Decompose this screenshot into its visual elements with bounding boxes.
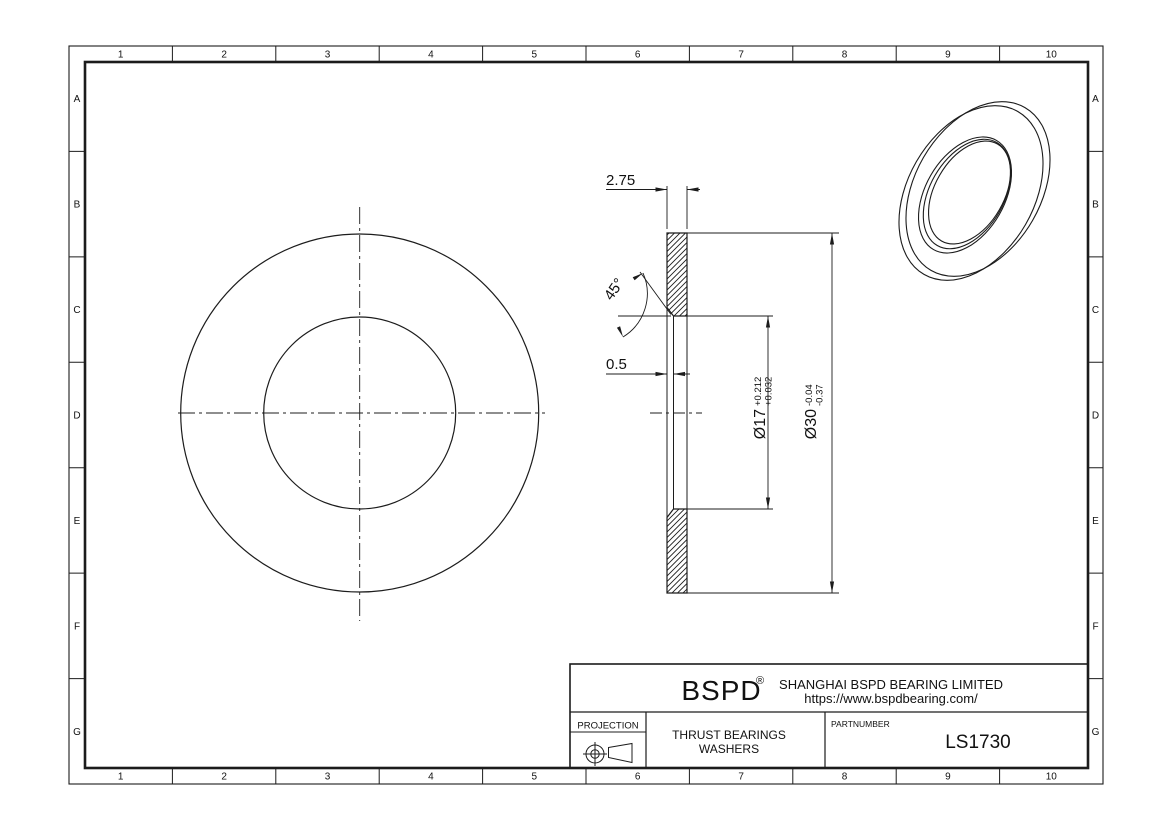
grid-column-label: 6 [635,50,641,61]
outer-tolerance-lower: -0.37 [815,384,826,406]
grid-row-label: C [1092,305,1099,316]
grid-column-label: 5 [532,772,538,783]
projection-label: PROJECTION [577,721,638,732]
dimension-chamfer-angle: 45° [601,272,671,337]
section-top-band [667,233,687,316]
grid-column-label: 7 [738,772,744,783]
bore-silhouette-lines [667,308,687,518]
dimension-chamfer-size: 0.5 [606,356,690,376]
chamfer-size-value: 0.5 [606,356,627,373]
projection-crosshair [583,742,607,766]
arrowhead [656,187,668,191]
drawing-sheet: 1 2 3 4 5 6 7 8 9 10 1 2 3 4 5 6 7 8 9 1… [0,0,1170,827]
arrowhead [656,372,668,376]
registered-trademark: ® [756,675,764,687]
title-block: BSPD ® SHANGHAI BSPD BEARING LIMITED htt… [570,664,1088,768]
grid-column-label: 3 [325,772,331,783]
outer-back-edge [869,80,1072,306]
extension-lines [667,186,687,229]
grid-column-label: 9 [945,772,951,783]
dimension-thickness: 2.75 [606,172,700,229]
grid-column-label: 1 [118,50,124,61]
arrowhead [633,273,643,280]
grid-row-label: C [73,305,80,316]
grid-row-label: B [1092,200,1099,211]
grid-row-label: F [74,621,80,632]
isometric-view [869,76,1079,306]
outer-front-edge [876,76,1079,302]
grid-column-label: 5 [532,50,538,61]
angle-arc [623,273,647,337]
grid-column-label: 4 [428,50,434,61]
grid-row-label: D [73,411,80,422]
grid-column-label: 6 [635,772,641,783]
outer-tolerance-upper: -0.04 [804,384,815,406]
grid-row-label: E [74,516,81,527]
inner-border [85,62,1088,768]
grid-row-label: A [1092,94,1099,105]
arrowhead [766,498,770,510]
bore-front-edge [899,121,1030,270]
grid-column-label: 8 [842,772,848,783]
chamfer-angle-value: 45° [601,275,628,303]
grid-column-label: 10 [1046,50,1058,61]
arrowhead [830,582,834,594]
grid-row-label: E [1092,516,1099,527]
product-title-line2: WASHERS [699,742,759,756]
grid-column-label: 2 [221,50,227,61]
partnumber-value: LS1730 [945,732,1011,753]
grid-column-label: 2 [221,772,227,783]
projection-cone [609,744,633,763]
section-bottom-band [667,509,687,593]
grid-row-label: B [74,200,81,211]
engineering-drawing: 1 2 3 4 5 6 7 8 9 10 1 2 3 4 5 6 7 8 9 1… [0,0,1170,827]
grid-row-label: F [1092,621,1098,632]
column-ticks-top [172,46,999,62]
first-angle-projection-icon [583,742,632,766]
arrowhead [830,233,834,245]
arrowhead [687,187,699,191]
bore-chamfer-edge [905,124,1029,264]
brand-logo: BSPD [681,675,761,706]
grid-column-label: 4 [428,772,434,783]
outer-diameter-value: Ø30 [803,409,820,439]
grid-row-label: G [73,727,81,738]
grid-row-label: D [1092,411,1099,422]
grid-column-label: 10 [1046,772,1058,783]
company-name: SHANGHAI BSPD BEARING LIMITED [779,677,1003,692]
company-website: https://www.bspdbearing.com/ [804,691,978,706]
arrowhead [617,326,623,337]
grid-column-label: 3 [325,50,331,61]
bore-diameter-value: Ø17 [752,409,769,439]
dimension-bore-diameter: Ø17 +0.212 +0.032 [674,316,775,509]
arrowhead [766,316,770,328]
front-view [178,207,545,621]
drawing-frame [69,46,1103,784]
grid-column-label: 1 [118,772,124,783]
grid-column-label: 9 [945,50,951,61]
grid-row-label: A [74,94,81,105]
grid-labels: 1 2 3 4 5 6 7 8 9 10 1 2 3 4 5 6 7 8 9 1… [73,50,1100,783]
arrowhead [674,372,686,376]
thickness-value: 2.75 [606,172,635,189]
grid-row-label: G [1092,727,1100,738]
grid-column-label: 7 [738,50,744,61]
bore-tolerance-upper: +0.212 [753,377,764,406]
bore-tolerance-lower: +0.032 [764,377,775,406]
partnumber-label: PARTNUMBER [831,719,890,729]
outer-border [69,46,1103,784]
column-ticks-bottom [172,768,999,784]
product-title-line1: THRUST BEARINGS [672,728,786,742]
grid-column-label: 8 [842,50,848,61]
section-view [650,233,702,593]
